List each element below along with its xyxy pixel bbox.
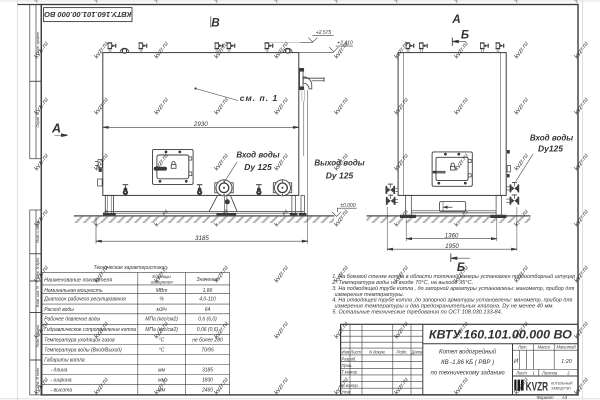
svg-text:Dy 125: Dy 125	[244, 162, 272, 172]
svg-text:Т.контр.: Т.контр.	[342, 370, 359, 375]
svg-text:мм: мм	[158, 387, 165, 393]
svg-text:Температура уходящих газов: Температура уходящих газов	[44, 337, 115, 343]
svg-text:А: А	[451, 14, 460, 26]
svg-text:Подп. и дата: Подп. и дата	[36, 325, 40, 348]
svg-text:Листов: Листов	[541, 371, 558, 376]
svg-text:м3/ч: м3/ч	[157, 307, 168, 313]
svg-text:А3: А3	[561, 395, 568, 400]
svg-text:Масштаб: Масштаб	[557, 345, 577, 350]
svg-text:мм: мм	[158, 377, 165, 383]
svg-text:КВТУ.160.101.00.000 ВО: КВТУ.160.101.00.000 ВО	[44, 10, 131, 19]
svg-text:МВт: МВт	[156, 288, 168, 294]
svg-text:Инв. N подл.: Инв. N подл.	[36, 367, 40, 388]
svg-text:3185: 3185	[195, 235, 209, 242]
svg-text:Гидравлическое сопротивление к: Гидравлическое сопротивление котла	[44, 327, 136, 333]
svg-text:Котел водогрейный: Котел водогрейный	[439, 349, 497, 356]
svg-text:64: 64	[205, 307, 211, 313]
svg-text:см. п. 1: см. п. 1	[240, 93, 278, 103]
svg-text:Утв.: Утв.	[342, 389, 351, 394]
svg-text:1,86: 1,86	[203, 288, 213, 294]
svg-text:Изм.Лист: Изм.Лист	[342, 349, 362, 354]
svg-text:1360: 1360	[445, 232, 459, 239]
svg-text:Инв. N дубл.: Инв. N дубл.	[36, 257, 40, 278]
svg-text:5. Остальные технические треб: 5. Остальные технические требования по О…	[332, 309, 502, 315]
svg-text:3185: 3185	[202, 367, 213, 373]
svg-text:КВТУ.160.101.00.000 ВО: КВТУ.160.101.00.000 ВО	[429, 328, 573, 342]
svg-text:В: В	[211, 18, 219, 30]
svg-text:1830: 1830	[202, 377, 213, 383]
svg-text:Рабочее давление воды: Рабочее давление воды	[44, 317, 100, 323]
svg-text:Лит.: Лит.	[517, 345, 528, 350]
svg-text:Справ. N: Справ. N	[36, 112, 40, 127]
svg-text:Формат: Формат	[536, 395, 553, 400]
svg-text:2460: 2460	[201, 387, 213, 393]
svg-text:%: %	[159, 297, 164, 303]
svg-text:Расход воды: Расход воды	[44, 307, 74, 313]
svg-text:0,6 (6,0): 0,6 (6,0)	[198, 317, 217, 323]
svg-text:Вход воды: Вход воды	[236, 150, 279, 159]
svg-text:по техническому заданию: по техническому заданию	[431, 371, 506, 377]
svg-text:Номинальная мощность: Номинальная мощность	[44, 288, 103, 294]
svg-text:N докум.: N докум.	[369, 349, 386, 354]
svg-text:Перв. примен.: Перв. примен.	[36, 31, 40, 55]
svg-text:МПа (кгс/см2): МПа (кгс/см2)	[145, 327, 178, 333]
svg-text:Дата: Дата	[410, 349, 423, 354]
svg-text:°С: °С	[159, 337, 165, 343]
svg-text:Масса: Масса	[538, 345, 551, 350]
svg-text:Б: Б	[461, 30, 469, 42]
svg-text:КОТЕЛЬНЫЙ: КОТЕЛЬНЫЙ	[551, 381, 573, 385]
svg-text:А: А	[51, 122, 61, 136]
svg-text:Взам. инв. N: Взам. инв. N	[36, 286, 40, 307]
svg-text:70/95: 70/95	[201, 347, 214, 353]
svg-text:МПа (кгс/см2): МПа (кгс/см2)	[145, 317, 178, 323]
svg-text:измерения: измерения	[151, 279, 174, 284]
svg-text:0,06 (0,6): 0,06 (0,6)	[197, 327, 219, 333]
svg-text:1:20: 1:20	[561, 359, 573, 365]
svg-text:Наименование показателя: Наименование показателя	[44, 278, 112, 284]
svg-text:мм: мм	[158, 367, 165, 373]
svg-text:Габариты котла: Габариты котла	[44, 357, 85, 363]
svg-text:Подп. и дата: Подп. и дата	[36, 221, 40, 244]
svg-text:Пров.: Пров.	[342, 363, 353, 368]
svg-text:Значение: Значение	[197, 277, 219, 283]
svg-text:+2.410: +2.410	[337, 41, 353, 47]
svg-text:КВ -1,86 КБ ( РВР ): КВ -1,86 КБ ( РВР )	[441, 360, 494, 366]
svg-text:- ширина: - ширина	[51, 377, 72, 383]
svg-text:Н.контр.: Н.контр.	[342, 383, 359, 388]
svg-text:°С: °С	[159, 347, 165, 353]
svg-text:И: И	[514, 359, 519, 365]
svg-text:Б: Б	[457, 262, 465, 274]
svg-text:Лист: Лист	[515, 371, 527, 376]
svg-text:Температура воды (Вход/Выход): Температура воды (Вход/Выход)	[44, 347, 122, 353]
svg-text:Техническая характеристика: Техническая характеристика	[94, 265, 165, 271]
svg-text:KVZR: KVZR	[526, 380, 549, 394]
svg-text:Диапазон рабочего регулировани: Диапазон рабочего регулирования	[43, 297, 126, 303]
svg-text:1950: 1950	[445, 243, 459, 250]
svg-text:Единицы: Единицы	[152, 274, 171, 279]
svg-text:4,0-110: 4,0-110	[199, 297, 216, 303]
svg-text:не более 280: не более 280	[192, 337, 223, 343]
svg-text:Вход воды: Вход воды	[530, 133, 573, 142]
svg-text:1: 1	[532, 371, 534, 376]
svg-text:Подп.: Подп.	[397, 349, 408, 354]
svg-text:2930: 2930	[193, 121, 208, 128]
svg-text:Выход воды: Выход воды	[314, 158, 364, 167]
svg-text:- длина: - длина	[51, 367, 68, 373]
svg-text:Dy 125: Dy 125	[326, 170, 354, 180]
svg-text:Dy125: Dy125	[538, 144, 563, 154]
svg-text:- высота: - высота	[51, 387, 73, 393]
svg-text:±0.000: ±0.000	[340, 203, 355, 209]
svg-text:Разраб.: Разраб.	[342, 356, 357, 361]
svg-text:+2.575: +2.575	[316, 30, 332, 36]
svg-text:ЗАВОД РЭП: ЗАВОД РЭП	[551, 386, 571, 390]
